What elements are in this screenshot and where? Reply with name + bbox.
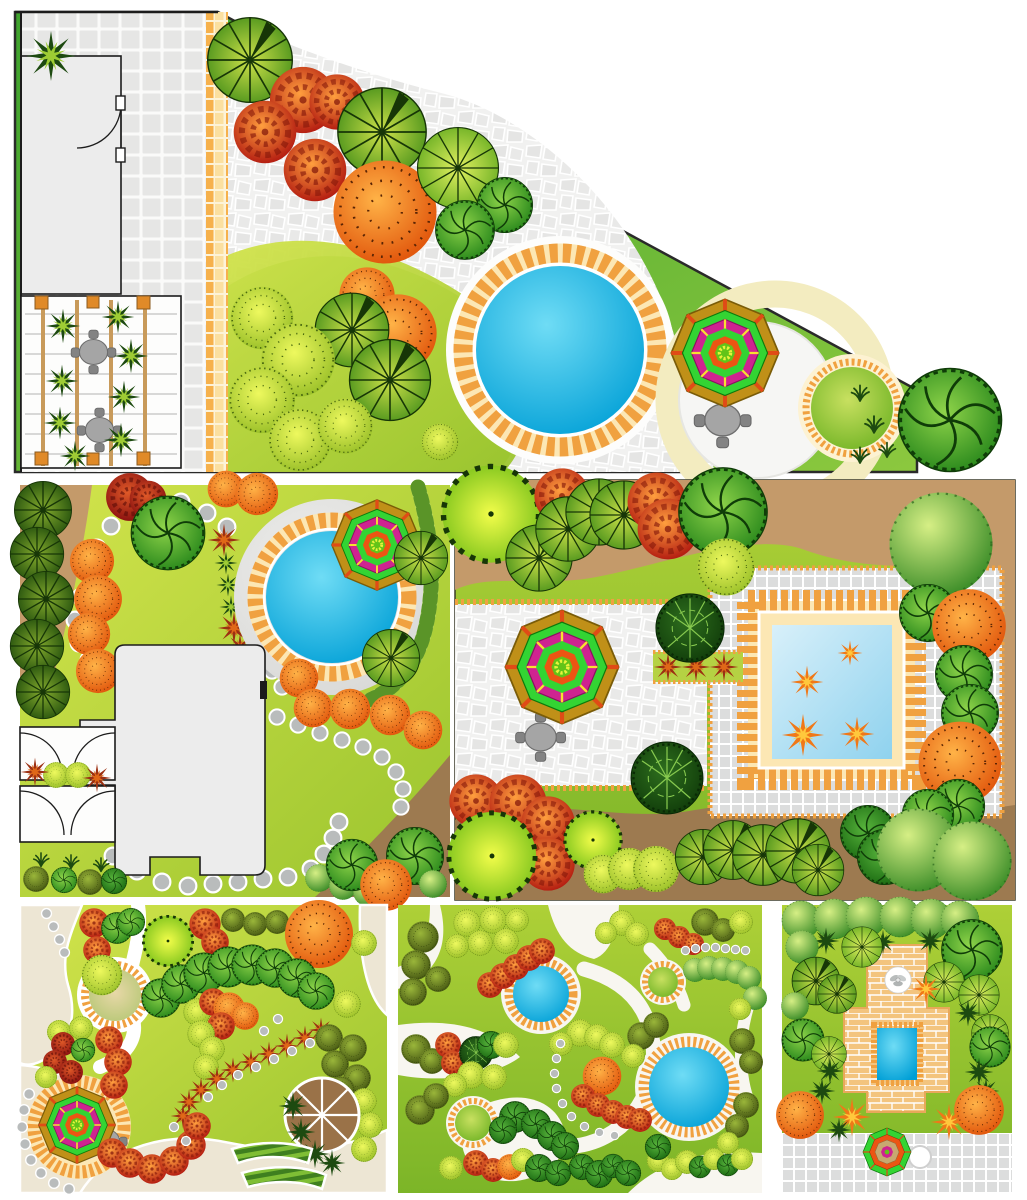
tree-cone-icon: [16, 665, 69, 718]
tree-swirl-icon: [131, 496, 205, 570]
tree-orange-icon: [776, 1091, 824, 1139]
large-specimen-tree-icon: [898, 368, 1001, 471]
square-pool: [748, 601, 915, 779]
shrub-yellow-icon: [65, 762, 91, 788]
pond-water: [649, 1047, 729, 1127]
shrub-swirl-icon: [101, 868, 127, 894]
shrub-olive-icon: [221, 908, 245, 932]
gray-tile-apron: [782, 1128, 1012, 1193]
floating-leaf-icon: [791, 666, 824, 699]
round-pool: [446, 236, 674, 464]
pool-water: [877, 1028, 917, 1080]
tree-cone-icon: [10, 619, 63, 672]
fountain-icon: [885, 967, 911, 993]
tree-ball-icon: [932, 821, 1011, 900]
maple-orange-icon: [911, 974, 942, 1005]
round-lawn-circle: [640, 959, 686, 1005]
tree-orange-icon: [360, 859, 412, 911]
shrub-orange-icon: [68, 613, 110, 655]
plan-triangular-garden: [15, 8, 925, 476]
pool-water: [772, 625, 892, 759]
maple-icon: [83, 764, 112, 793]
plan-winding-path-garden: [20, 905, 387, 1193]
shrub-orange-icon: [76, 649, 120, 693]
shrub-orange-icon: [236, 473, 278, 515]
plan-brick-terrace-garden: [782, 905, 1012, 1193]
garage-bay: [20, 786, 115, 842]
shrub-swirl-icon: [51, 867, 77, 893]
tree-swirl-icon: [970, 1027, 1010, 1067]
round-side-table: [909, 1146, 931, 1168]
palm-tuft-icon: [817, 1058, 844, 1085]
maple-icon: [21, 758, 50, 787]
palm-tuft-icon: [827, 1118, 852, 1143]
parasol-icon: [863, 1128, 911, 1176]
plan-lawn-garden: [20, 485, 450, 897]
maple-orange-icon: [931, 1104, 967, 1140]
shrub-yellow-icon: [317, 398, 372, 453]
shrub-yellow-icon: [633, 846, 679, 892]
shrub-ball-icon: [419, 870, 447, 898]
shrub-olive-icon: [23, 866, 49, 892]
palm-tuft-icon: [287, 1118, 316, 1147]
tree-rib-icon: [818, 975, 857, 1014]
round-lawn-circle: [798, 354, 906, 462]
tree-rib-icon: [924, 962, 964, 1002]
pergola-seating-area: [21, 296, 181, 471]
tree-orange-icon: [954, 1085, 1004, 1135]
corner-fern-icon: [26, 31, 76, 81]
maple-icon: [710, 653, 739, 682]
maple-icon: [208, 524, 241, 557]
floating-leaf-icon: [838, 641, 863, 666]
parasol-icon: [671, 299, 779, 407]
tree-orange-icon: [285, 900, 353, 968]
shrub-yellow-icon: [43, 762, 69, 788]
fern-icon: [214, 551, 237, 574]
tree-rib-icon: [394, 531, 447, 584]
tree-yellow-icon: [697, 538, 754, 595]
shrub-yellow-icon: [351, 930, 377, 956]
tree-crenellated-icon: [448, 812, 536, 900]
floating-leaf-icon: [840, 717, 875, 752]
tree-swirl-icon: [117, 908, 145, 936]
tree-rib-icon: [792, 844, 844, 896]
floating-leaf-icon: [782, 714, 824, 756]
tree-yellow-icon: [82, 955, 122, 995]
plan-square-pool-garden: [455, 480, 1015, 900]
tree-rib-icon: [842, 927, 882, 967]
square-pool: [874, 1025, 920, 1083]
tree-swirl-icon: [298, 973, 335, 1010]
palm-tuft-icon: [917, 928, 944, 955]
clipped-evergreen-icon: [656, 594, 724, 662]
palm-tuft-icon: [279, 1092, 308, 1121]
tree-flower-icon: [284, 139, 347, 202]
tree-crenellated-icon: [143, 916, 193, 966]
shrub-orange-icon: [404, 711, 443, 750]
clipped-evergreen-icon: [631, 742, 703, 814]
plan-two-pond-garden: [398, 905, 762, 1193]
pool-water: [476, 266, 644, 434]
shrub-orange-icon: [294, 689, 333, 728]
tree-cone-icon: [18, 571, 73, 626]
landscape-plan-sheet: [0, 0, 1027, 1200]
shrub-orange-icon: [330, 689, 370, 729]
door-mark: [260, 681, 267, 699]
shrub-olive-icon: [243, 912, 267, 936]
tree-flower-icon: [234, 101, 297, 164]
shrub-yellow-icon: [422, 424, 459, 461]
shrub-olive-icon: [77, 869, 103, 895]
palm-tuft-icon: [965, 1058, 994, 1087]
tree-rib-icon: [362, 629, 419, 686]
tree-ball-icon: [889, 492, 992, 595]
parasol-icon: [505, 610, 618, 723]
tree-swirl-icon: [436, 201, 495, 260]
